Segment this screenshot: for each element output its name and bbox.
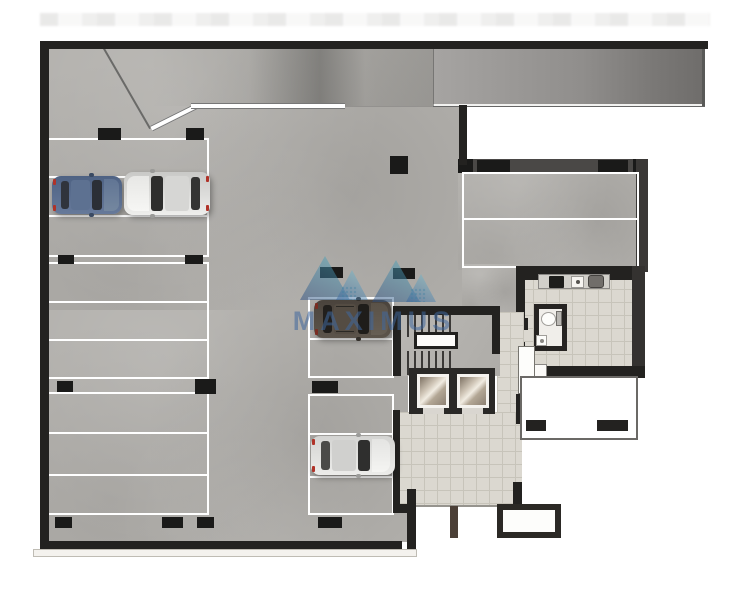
ramp-band-right-edge xyxy=(702,49,705,106)
top-texture-band xyxy=(40,13,710,26)
shaft-room xyxy=(497,504,561,538)
ramp-band-bottom-line xyxy=(433,106,705,107)
elevator-door-gap xyxy=(462,408,483,414)
wall-stub-brown xyxy=(450,506,458,538)
ramp-seam-line xyxy=(433,49,434,106)
column xyxy=(55,517,72,528)
elevator-door-gap xyxy=(423,408,444,414)
lightwell-wall-seg xyxy=(597,420,628,431)
parking-divider xyxy=(310,338,392,340)
parking-group-2 xyxy=(47,262,209,379)
east-boundary-wall xyxy=(459,105,467,165)
sink-icon xyxy=(571,276,584,288)
floor-plan-canvas: MAXIMUS xyxy=(0,0,742,600)
elevator-bank xyxy=(409,368,495,414)
refrigerator-icon xyxy=(588,275,604,288)
ramp-band xyxy=(433,49,703,106)
column xyxy=(195,379,216,394)
toilet-tank xyxy=(556,311,562,326)
perimeter-wall-bottom xyxy=(40,541,402,549)
ramp-edge-faint-line xyxy=(345,106,433,107)
column xyxy=(98,128,121,140)
curb-stripe-horizontal xyxy=(191,103,345,109)
parking-divider xyxy=(49,215,207,217)
entry-jog-wall-horizontal xyxy=(393,504,409,513)
sidewalk-band xyxy=(33,549,417,557)
car-blue xyxy=(52,176,122,214)
entry-jog-wall-vertical xyxy=(407,489,416,549)
parking-divider xyxy=(49,474,207,476)
stairwell-east-wall xyxy=(492,306,500,354)
column xyxy=(318,517,342,528)
parking-right-block xyxy=(462,172,639,268)
watermark-text: MAXIMUS xyxy=(286,306,462,337)
parking-divider xyxy=(49,432,207,434)
toilet-icon xyxy=(541,312,556,326)
parking-divider xyxy=(310,476,392,478)
column xyxy=(58,255,74,264)
parking-divider xyxy=(49,301,207,303)
column xyxy=(598,160,628,172)
lobby-floor xyxy=(398,412,522,507)
parking-divider xyxy=(310,433,392,435)
kitchenette-east-wall xyxy=(632,266,645,378)
stove-icon xyxy=(549,276,564,288)
column xyxy=(197,517,214,528)
elevator-cab-1 xyxy=(417,374,449,408)
parking-group-3 xyxy=(47,392,209,515)
column xyxy=(185,255,203,264)
watermark-dot-grid xyxy=(410,288,426,302)
column xyxy=(162,517,183,528)
perimeter-wall-top xyxy=(40,41,708,49)
ramp-slope-shading xyxy=(150,49,433,106)
column xyxy=(477,160,510,172)
column xyxy=(186,128,204,140)
watermark-dot-grid xyxy=(341,286,357,300)
hand-basin-icon xyxy=(536,335,547,346)
lightwell-wall-seg xyxy=(526,420,546,431)
parking-divider xyxy=(49,339,207,341)
perimeter-wall-left xyxy=(40,41,49,549)
car-white xyxy=(311,436,395,475)
car-silver-suv xyxy=(124,172,210,215)
column xyxy=(312,381,338,393)
parking-divider xyxy=(464,218,637,220)
column xyxy=(57,381,73,392)
column xyxy=(390,156,408,174)
elevator-cab-2 xyxy=(457,374,489,408)
